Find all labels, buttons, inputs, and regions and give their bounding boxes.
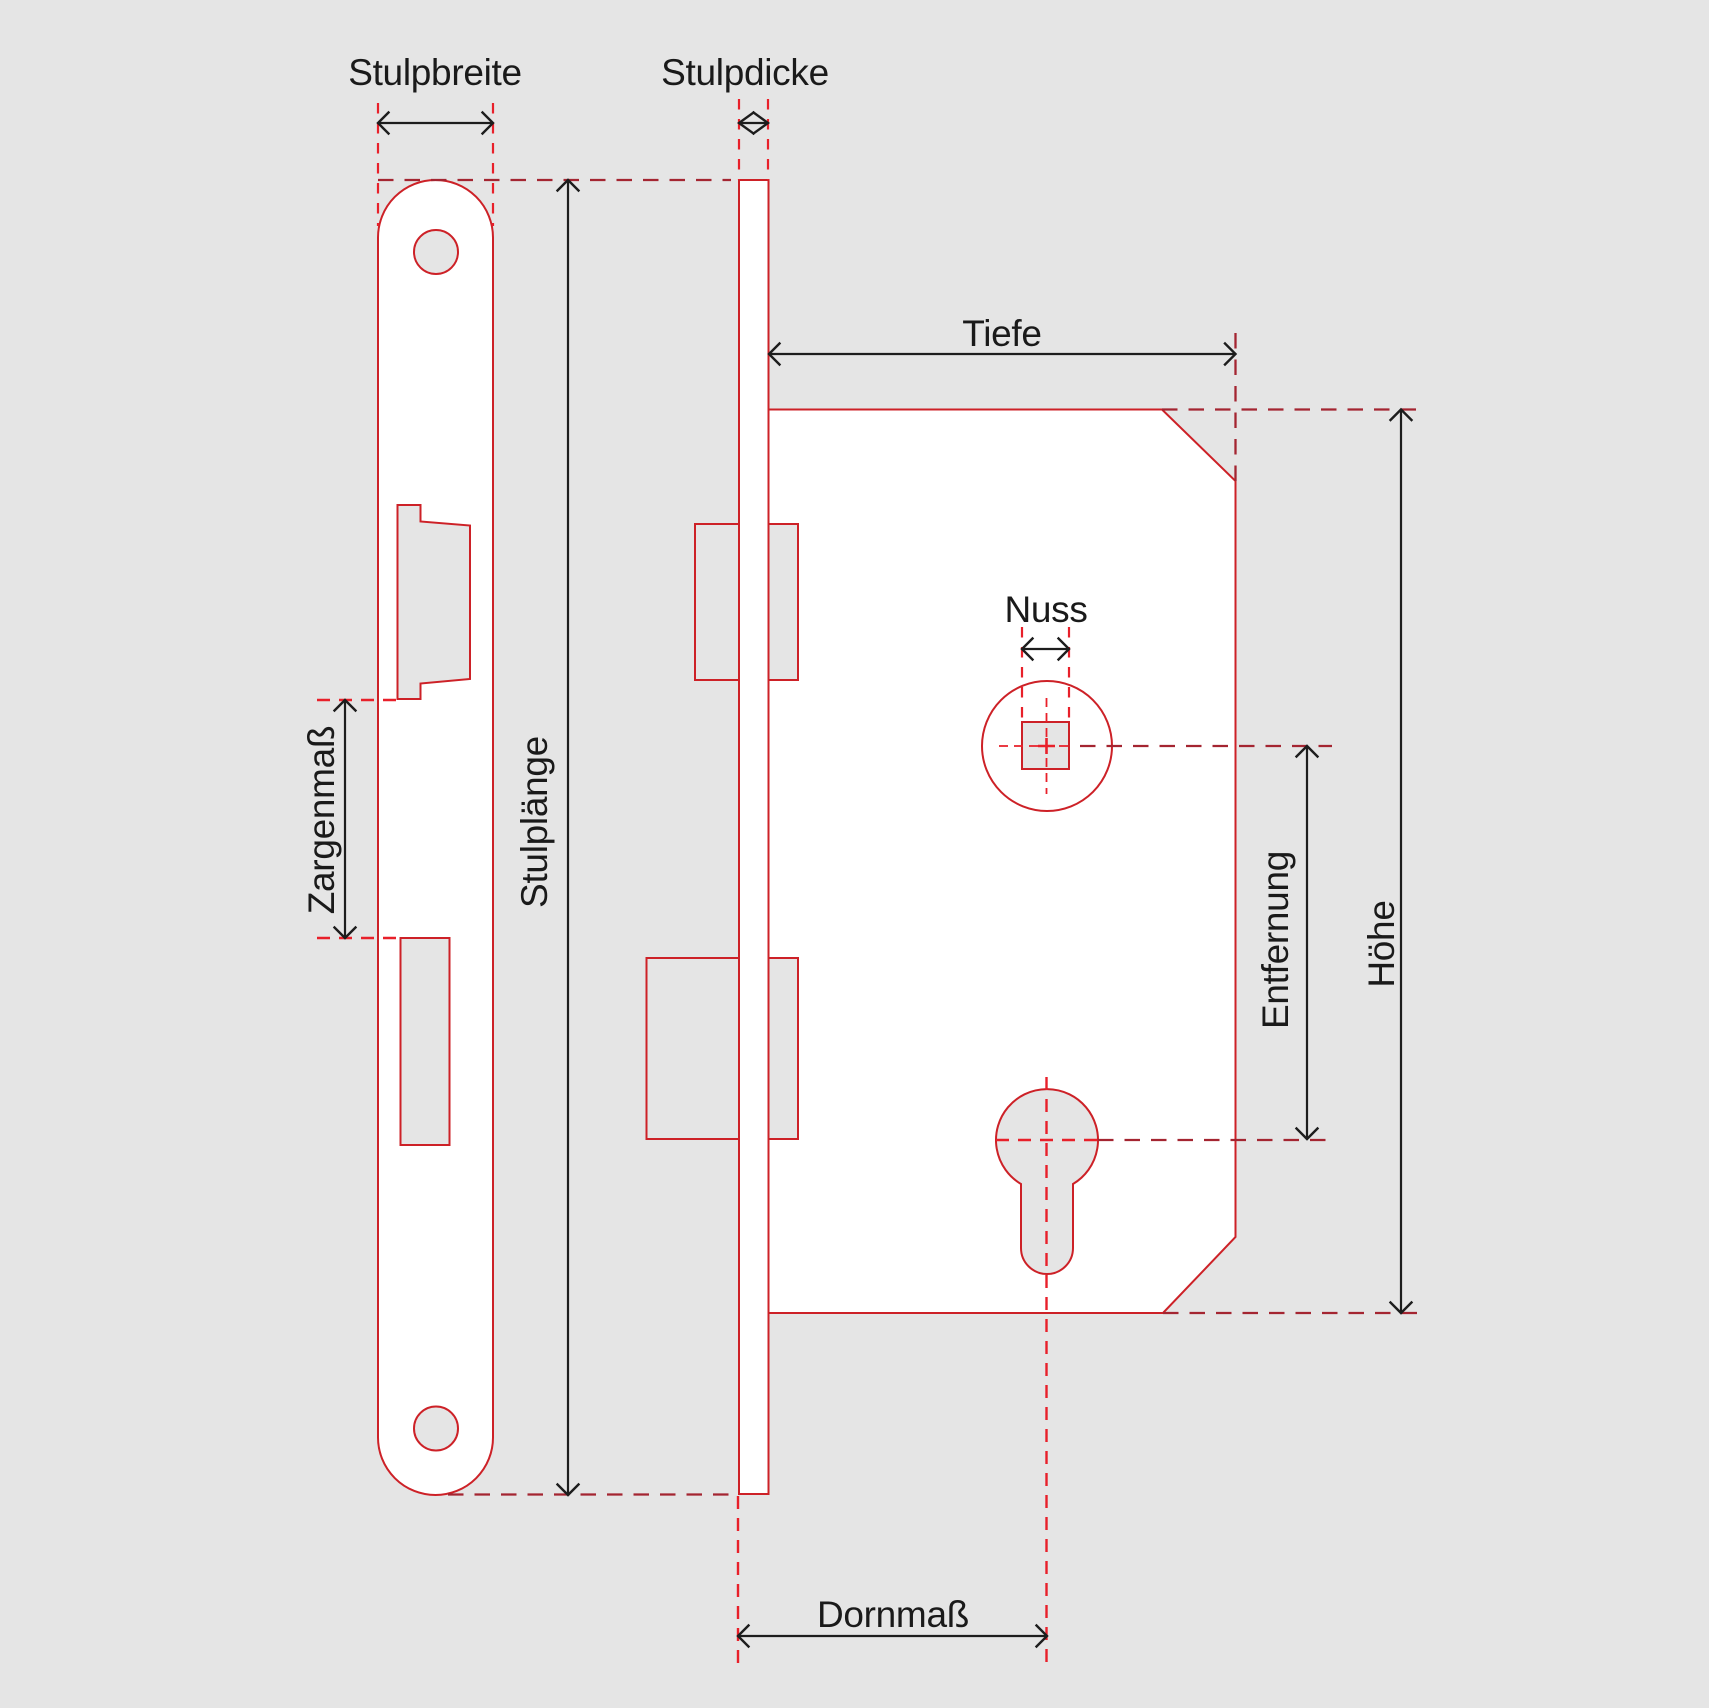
svg-text:Stulplänge: Stulplänge bbox=[514, 736, 555, 908]
svg-text:Entfernung: Entfernung bbox=[1255, 851, 1296, 1029]
svg-text:Dornmaß: Dornmaß bbox=[817, 1594, 969, 1635]
svg-text:Stulpbreite: Stulpbreite bbox=[348, 52, 522, 93]
svg-text:Stulpdicke: Stulpdicke bbox=[661, 52, 829, 93]
svg-text:Nuss: Nuss bbox=[1004, 589, 1087, 630]
svg-text:Höhe: Höhe bbox=[1361, 900, 1402, 987]
svg-text:Tiefe: Tiefe bbox=[962, 313, 1041, 354]
svg-text:Zargenmaß: Zargenmaß bbox=[301, 726, 342, 915]
